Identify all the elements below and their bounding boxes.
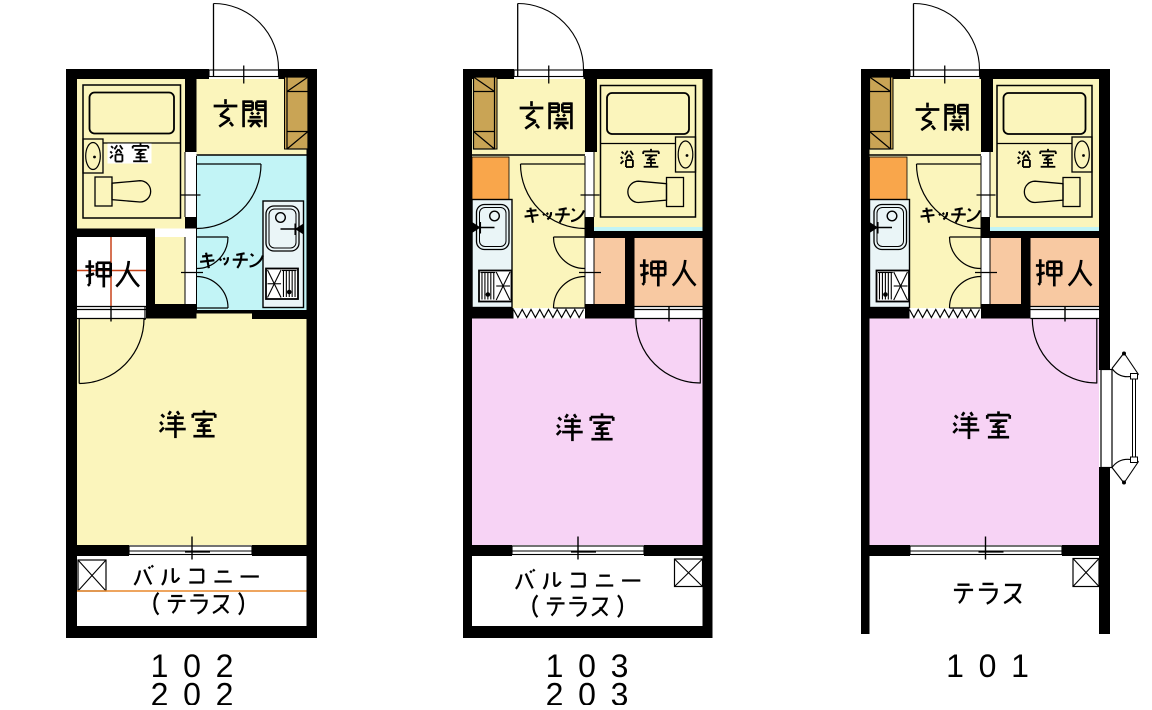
svg-text:3: 3: [611, 677, 629, 706]
svg-text:2: 2: [546, 677, 564, 706]
svg-text:2: 2: [216, 677, 234, 706]
svg-text:0: 0: [578, 677, 596, 706]
svg-text:0: 0: [979, 648, 997, 684]
svg-text:1: 1: [946, 648, 964, 684]
svg-text:0: 0: [183, 677, 201, 706]
svg-text:2: 2: [151, 677, 169, 706]
svg-text:1: 1: [1011, 648, 1029, 684]
